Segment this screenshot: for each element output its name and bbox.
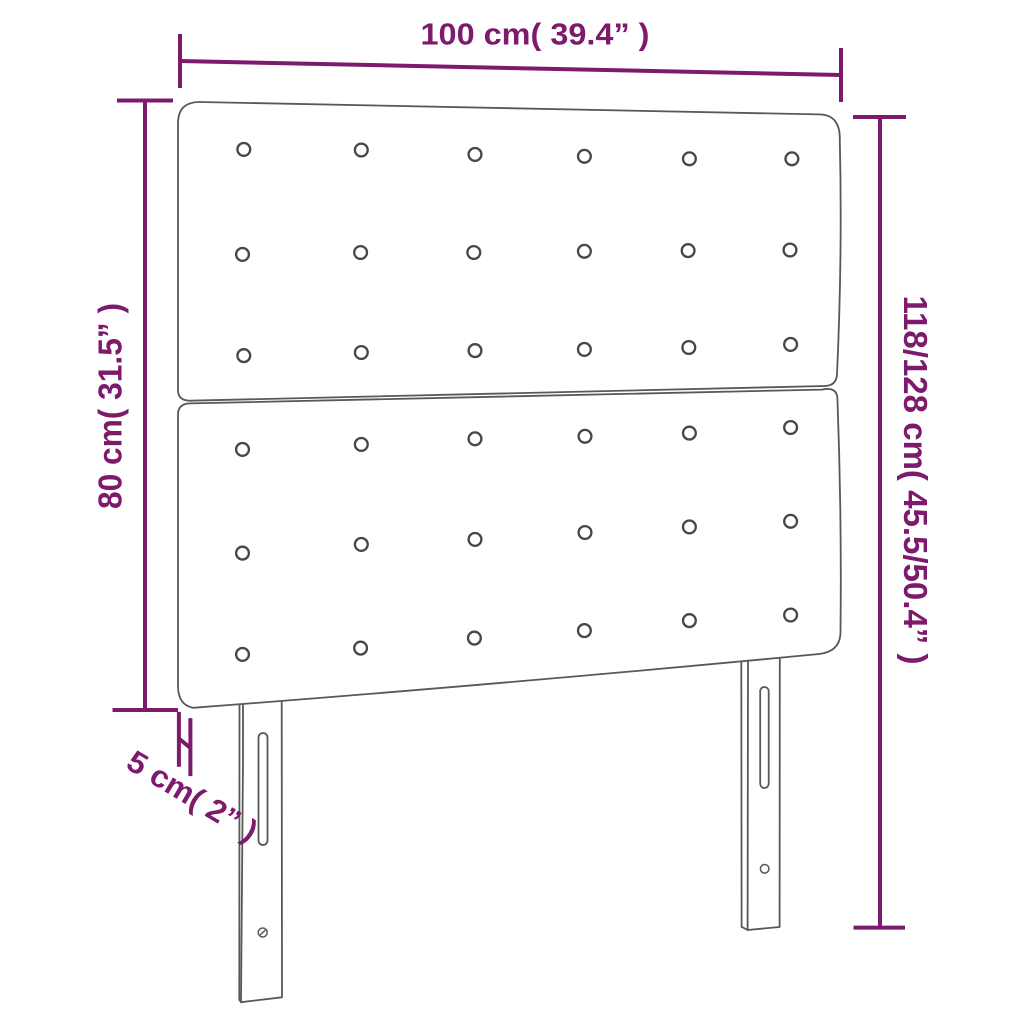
svg-text:100 cm( 39.4” ): 100 cm( 39.4” ) [421, 17, 650, 52]
svg-text:80 cm( 31.5” ): 80 cm( 31.5” ) [92, 303, 129, 509]
svg-text:118/128 cm( 45.5/50.4” ): 118/128 cm( 45.5/50.4” ) [897, 296, 934, 665]
